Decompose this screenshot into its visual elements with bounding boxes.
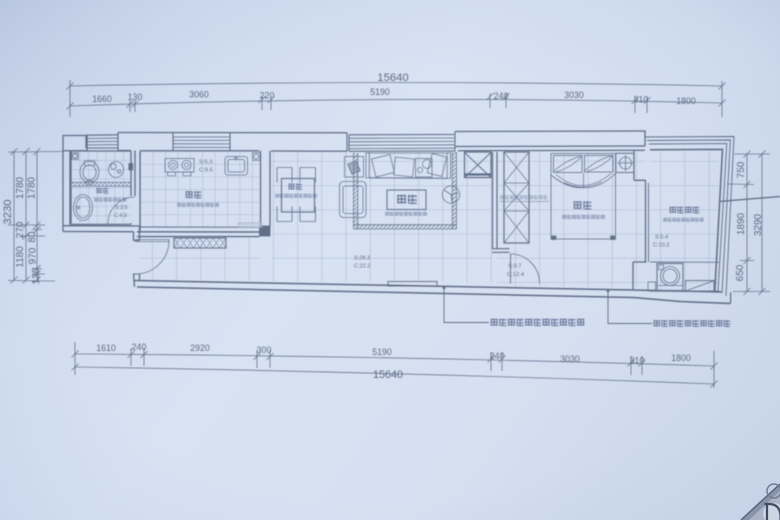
svg-text:S:5.3: S:5.3 xyxy=(199,160,213,166)
svg-text:C:10.2: C:10.2 xyxy=(653,243,669,249)
svg-text:650: 650 xyxy=(735,264,746,281)
svg-text:C:12.4: C:12.4 xyxy=(507,272,525,278)
svg-text:S:3.5: S:3.5 xyxy=(115,205,128,211)
svg-text:3060: 3060 xyxy=(189,90,209,100)
svg-text:3030: 3030 xyxy=(560,354,580,364)
svg-text:310: 310 xyxy=(634,95,649,105)
svg-text:240: 240 xyxy=(132,342,147,352)
svg-text:1800: 1800 xyxy=(671,353,691,363)
svg-text:240: 240 xyxy=(494,91,509,101)
svg-text:750: 750 xyxy=(736,161,747,178)
svg-text:130: 130 xyxy=(128,92,143,102)
svg-text:15640: 15640 xyxy=(377,72,408,84)
svg-text:S:9.7: S:9.7 xyxy=(508,264,522,270)
svg-text:270: 270 xyxy=(15,221,26,238)
svg-text:15640: 15640 xyxy=(373,369,403,381)
svg-text:3030: 3030 xyxy=(564,90,584,100)
svg-text:1610: 1610 xyxy=(96,343,116,353)
svg-text:1780: 1780 xyxy=(27,176,38,199)
svg-text:970: 970 xyxy=(28,247,39,264)
svg-text:C:22.2: C:22.2 xyxy=(354,264,370,270)
svg-text:5190: 5190 xyxy=(370,87,390,97)
svg-text:220: 220 xyxy=(260,91,275,101)
svg-text:130: 130 xyxy=(31,267,42,284)
svg-text:1780: 1780 xyxy=(15,176,26,199)
svg-text:240: 240 xyxy=(490,351,505,361)
svg-text:2920: 2920 xyxy=(190,343,210,353)
svg-text:3290: 3290 xyxy=(753,213,764,236)
svg-text:300: 300 xyxy=(257,345,272,355)
svg-text:1890: 1890 xyxy=(736,212,747,235)
svg-text:1660: 1660 xyxy=(92,94,112,104)
svg-text:C:4.9: C:4.9 xyxy=(114,213,127,219)
svg-text:C:9.6: C:9.6 xyxy=(199,168,213,174)
svg-text:3230: 3230 xyxy=(2,199,14,224)
svg-text:5190: 5190 xyxy=(372,347,392,357)
svg-text:80: 80 xyxy=(27,231,38,243)
svg-text:1180: 1180 xyxy=(15,246,26,268)
svg-text:1800: 1800 xyxy=(676,96,696,106)
svg-text:S:28.3: S:28.3 xyxy=(354,256,370,262)
svg-text:310: 310 xyxy=(630,356,645,366)
svg-text:S:5.4: S:5.4 xyxy=(655,235,668,241)
